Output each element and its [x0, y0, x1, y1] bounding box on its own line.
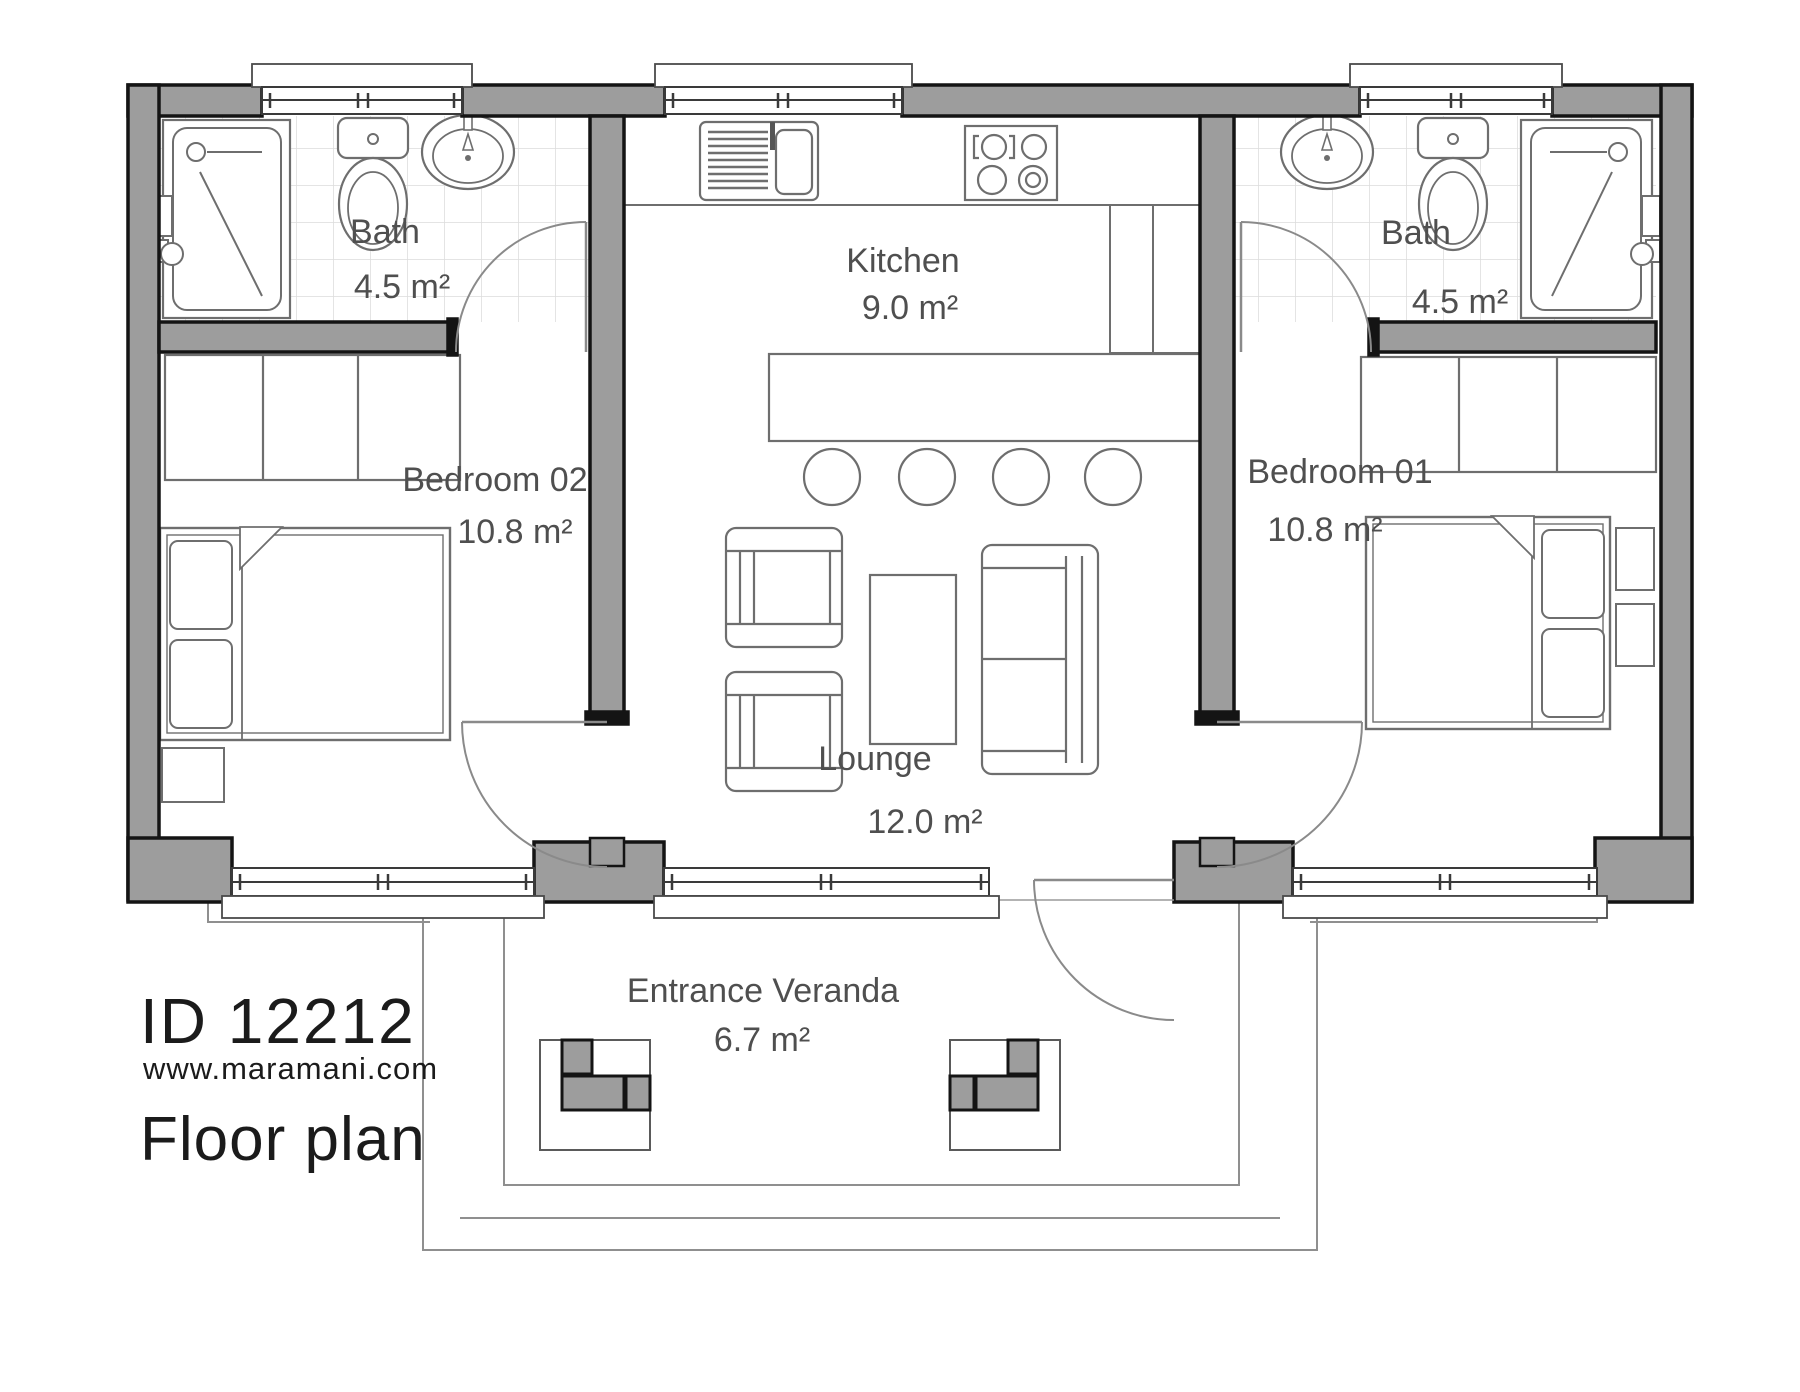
sofa [982, 545, 1098, 774]
window-bedroom-01 [1283, 868, 1607, 918]
label-veranda-name: Entrance Veranda [627, 972, 899, 1010]
window-bath-left [252, 64, 472, 114]
label-kitchen-name: Kitchen [846, 242, 959, 280]
floor-plan-drawing: Bath 4.5 m² Kitchen 9.0 m² Bath 4.5 m² B… [0, 0, 1800, 1392]
label-lounge-name: Lounge [818, 740, 931, 778]
window-bedroom-02 [222, 868, 544, 918]
label-bedroom-01-name: Bedroom 01 [1247, 453, 1432, 491]
nightstand-2-bedroom-01 [1616, 604, 1654, 666]
nightstand-bedroom-02 [162, 748, 224, 802]
window-kitchen [655, 64, 912, 114]
label-bedroom-02-name: Bedroom 02 [402, 461, 587, 499]
website-text: www.maramani.com [142, 1051, 438, 1086]
label-bedroom-01-area: 10.8 m² [1267, 511, 1382, 549]
stove-symbol [965, 126, 1057, 200]
label-bath-left-area: 4.5 m² [354, 268, 450, 306]
window-bath-right [1350, 64, 1562, 114]
label-bedroom-02-area: 10.8 m² [457, 513, 572, 551]
window-lounge [654, 868, 999, 918]
coffee-table [870, 575, 956, 744]
nightstand-1-bedroom-01 [1616, 528, 1654, 590]
label-kitchen-area: 9.0 m² [862, 289, 958, 327]
label-bath-right-name: Bath [1381, 214, 1451, 252]
label-bath-right-area: 4.5 m² [1412, 283, 1508, 321]
kitchen-island [769, 354, 1200, 441]
kitchen-sink-symbol [700, 122, 818, 200]
shower-right-symbol [1521, 120, 1660, 318]
bed-bedroom-02 [160, 527, 450, 740]
floor-plan-page: Bath 4.5 m² Kitchen 9.0 m² Bath 4.5 m² B… [0, 0, 1800, 1392]
bar-stools [804, 449, 1141, 505]
veranda-pillar-left [540, 1040, 650, 1150]
sink-left-symbol [422, 115, 514, 189]
label-bath-left-name: Bath [350, 213, 420, 251]
veranda-pillar-right [950, 1040, 1060, 1150]
bed-bedroom-01 [1366, 516, 1610, 729]
armchair-1 [726, 528, 842, 647]
plan-id-text: ID 12212 [140, 985, 416, 1057]
sink-right-symbol [1281, 115, 1373, 189]
label-veranda-area: 6.7 m² [714, 1021, 810, 1059]
shower-left-symbol [154, 120, 290, 318]
door-entrance [1034, 880, 1174, 1020]
plan-caption-text: Floor plan [140, 1105, 426, 1174]
label-lounge-area: 12.0 m² [867, 803, 982, 841]
